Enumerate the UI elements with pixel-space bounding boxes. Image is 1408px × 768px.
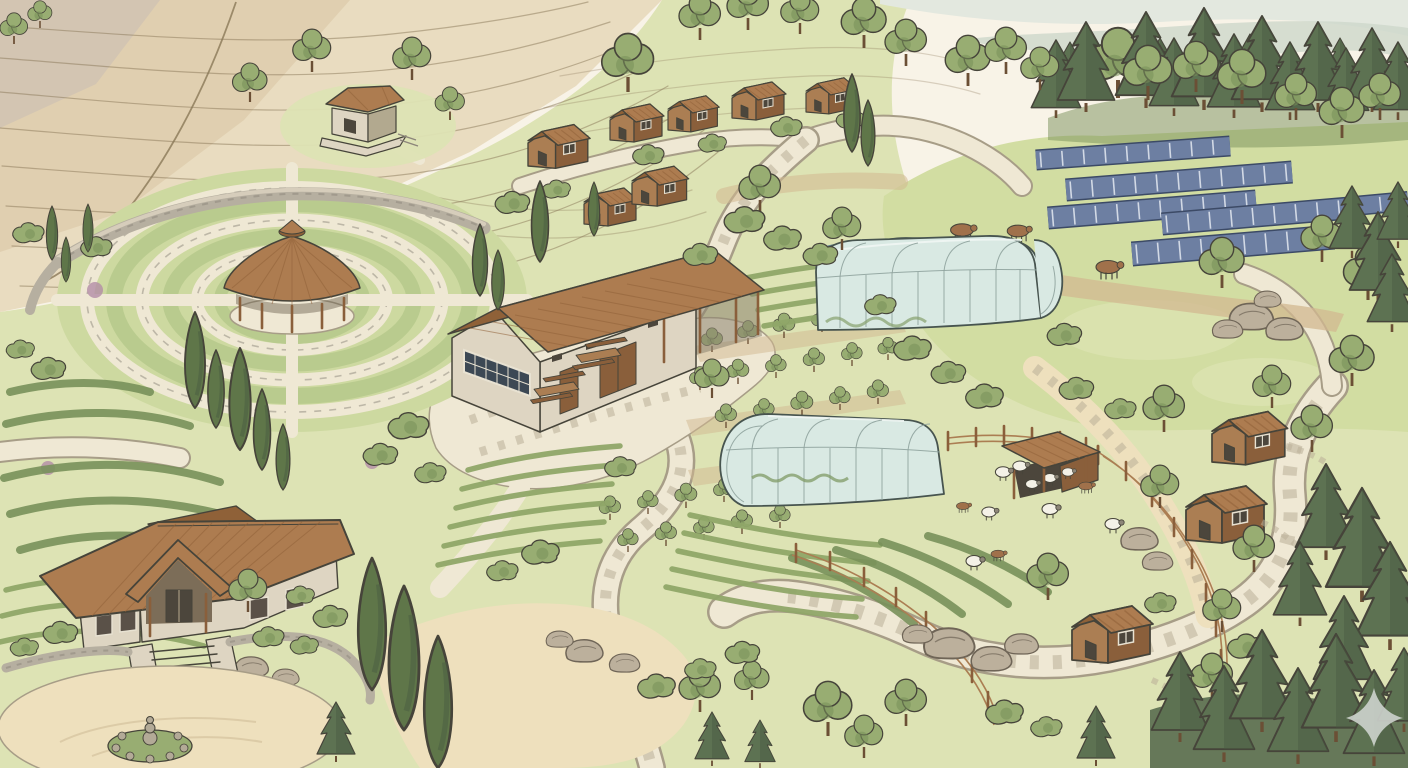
flower-patch [87,282,103,298]
illustration-canvas [0,0,1408,768]
farm-illustration [0,0,1408,768]
